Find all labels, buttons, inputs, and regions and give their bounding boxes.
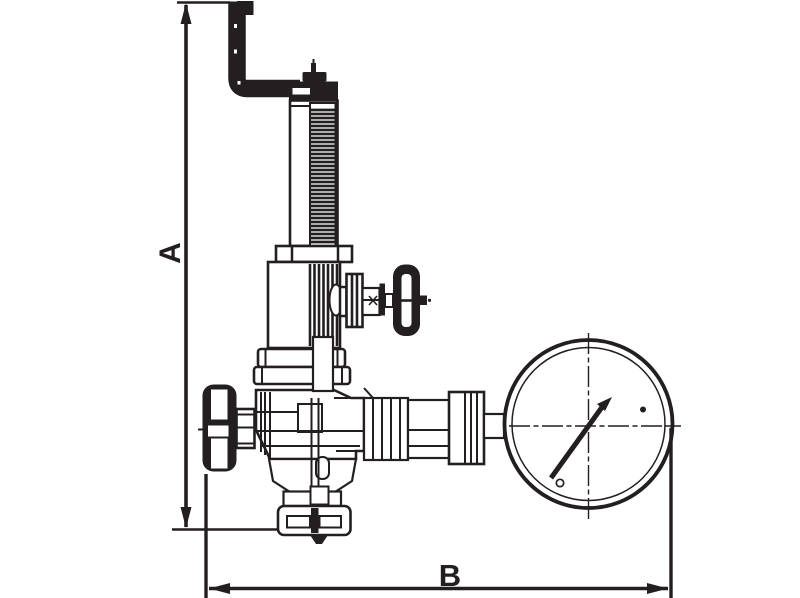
svg-text:B: B — [439, 558, 461, 593]
svg-text:A: A — [154, 242, 187, 264]
